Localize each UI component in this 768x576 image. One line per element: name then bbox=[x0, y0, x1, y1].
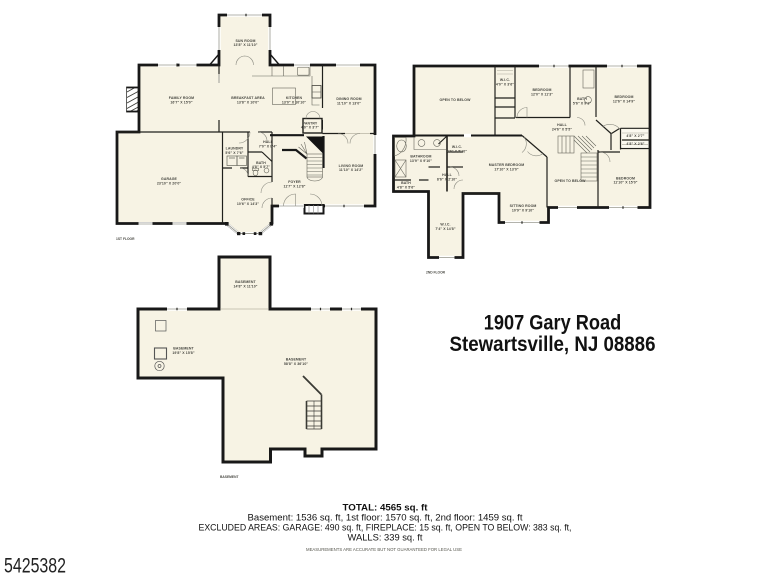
svg-text:BASEMENT: BASEMENT bbox=[220, 475, 239, 479]
svg-text:BASEMENT: BASEMENT bbox=[286, 358, 307, 362]
svg-text:4'8" X 2'6": 4'8" X 2'6" bbox=[626, 142, 644, 146]
svg-text:24'6" X 5'5": 24'6" X 5'5" bbox=[552, 127, 572, 131]
svg-text:12'0" X 11'3": 12'0" X 11'3" bbox=[531, 92, 553, 96]
svg-text:23'10" X 20'0": 23'10" X 20'0" bbox=[157, 181, 182, 185]
svg-text:14'8" X 11'10": 14'8" X 11'10" bbox=[233, 285, 257, 289]
svg-text:5'6" X 9'1": 5'6" X 9'1" bbox=[573, 101, 591, 105]
svg-text:19'8" X 15'8": 19'8" X 15'8" bbox=[172, 351, 194, 355]
svg-text:OPEN TO BELOW: OPEN TO BELOW bbox=[440, 98, 472, 102]
svg-text:BASEMENT: BASEMENT bbox=[235, 280, 256, 284]
svg-text:OPEN TO BELOW: OPEN TO BELOW bbox=[555, 179, 587, 183]
svg-text:BASEMENT: BASEMENT bbox=[173, 347, 194, 351]
svg-text:4'0" X 3'6": 4'0" X 3'6" bbox=[496, 82, 514, 86]
svg-text:4'8" X 5'6": 4'8" X 5'6" bbox=[397, 185, 415, 189]
svg-text:W.I.C.: W.I.C. bbox=[440, 223, 450, 227]
svg-text:11'10" X 13'0": 11'10" X 13'0" bbox=[337, 101, 361, 105]
svg-text:MEASUREMENTS ARE ACCURATE BUT: MEASUREMENTS ARE ACCURATE BUT NOT GUARAN… bbox=[306, 547, 462, 552]
svg-text:13'9" X 9'10": 13'9" X 9'10" bbox=[410, 159, 432, 163]
svg-text:WALLS: 339 sq. ft: WALLS: 339 sq. ft bbox=[348, 533, 423, 544]
svg-text:4'8" X 2'7": 4'8" X 2'7" bbox=[626, 134, 644, 138]
svg-text:4'0" X 3'7": 4'0" X 3'7" bbox=[301, 125, 319, 129]
svg-text:11'10" X 14'2": 11'10" X 14'2" bbox=[339, 168, 363, 172]
svg-text:4'6" X 5'10": 4'6" X 5'10" bbox=[447, 149, 467, 153]
svg-text:1907 Gary Road: 1907 Gary Road bbox=[484, 312, 622, 335]
svg-text:10'9" X 9'10": 10'9" X 9'10" bbox=[512, 208, 534, 212]
svg-text:16'7" X 15'0": 16'7" X 15'0" bbox=[170, 100, 192, 104]
svg-text:13'8" X 11'10": 13'8" X 11'10" bbox=[233, 43, 257, 47]
svg-text:11'10" X 15'0": 11'10" X 15'0" bbox=[613, 181, 637, 185]
svg-text:11'7" X 12'8": 11'7" X 12'8" bbox=[283, 184, 305, 188]
svg-text:4'8" X 5'7": 4'8" X 5'7" bbox=[252, 165, 270, 169]
svg-text:13'8" X 10'0": 13'8" X 10'0" bbox=[237, 100, 259, 104]
svg-text:5425382: 5425382 bbox=[4, 555, 66, 576]
svg-text:12'6" X 14'9": 12'6" X 14'9" bbox=[613, 99, 635, 103]
svg-text:7'4" X 14'8": 7'4" X 14'8" bbox=[435, 227, 455, 231]
svg-text:58'8" X 36'10": 58'8" X 36'10" bbox=[284, 362, 309, 366]
svg-text:8'6" X 2'10": 8'6" X 2'10" bbox=[437, 177, 457, 181]
svg-text:5'6" X 7'6": 5'6" X 7'6" bbox=[225, 151, 243, 155]
svg-text:Stewartsville, NJ 08886: Stewartsville, NJ 08886 bbox=[450, 333, 656, 356]
svg-text:7'0" X 8'4": 7'0" X 8'4" bbox=[259, 144, 277, 148]
svg-text:1ST FLOOR: 1ST FLOOR bbox=[116, 237, 135, 241]
svg-text:17'10" X 13'0": 17'10" X 13'0" bbox=[494, 167, 519, 171]
svg-text:13'0" X 10'10": 13'0" X 10'10" bbox=[282, 100, 307, 104]
svg-text:10'6" X 14'3": 10'6" X 14'3" bbox=[237, 202, 259, 206]
svg-text:2ND FLOOR: 2ND FLOOR bbox=[426, 271, 446, 275]
